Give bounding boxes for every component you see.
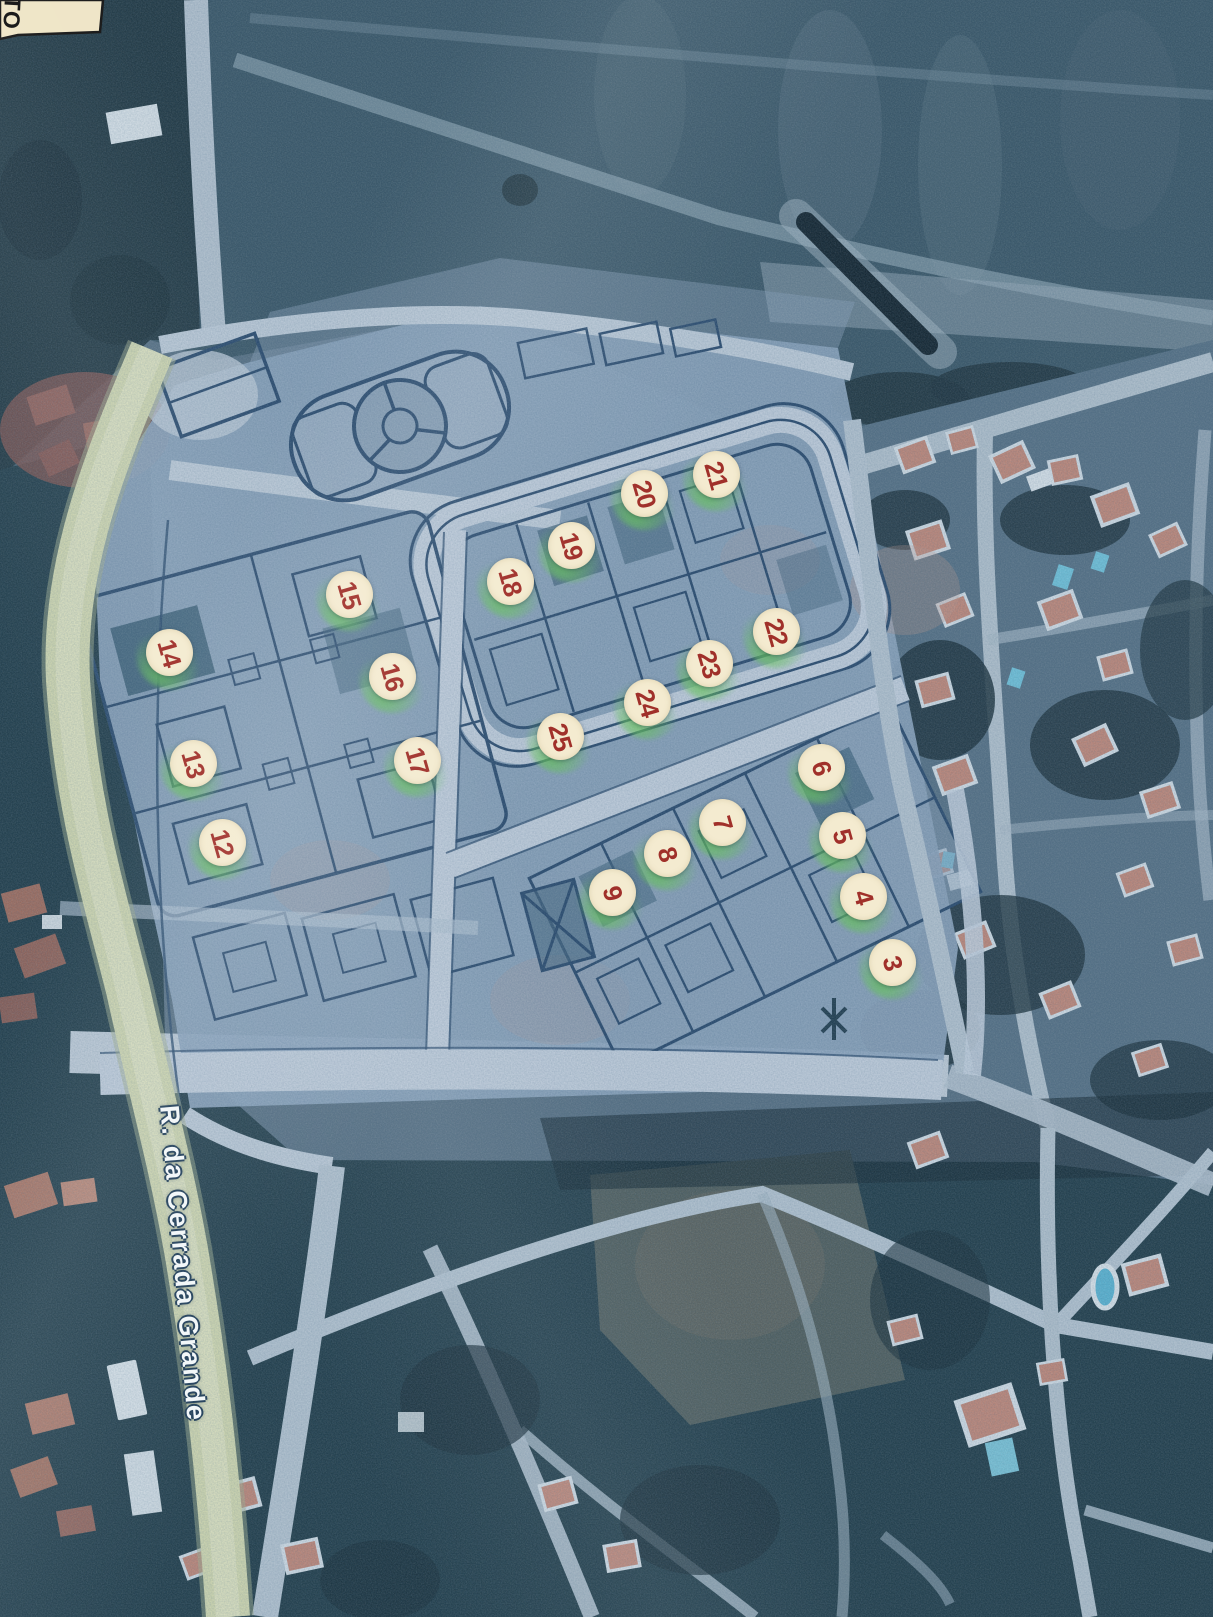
lot-marker-number: 6 — [807, 757, 836, 777]
lot-marker-number: 21 — [700, 458, 732, 491]
corner-label: TO — [0, 0, 26, 30]
lot-marker-16: 16 — [369, 653, 416, 700]
lot-marker-number: 12 — [206, 826, 238, 859]
lot-marker-number: 19 — [555, 529, 587, 562]
markers-layer: 34567891213141516171819202122232425 — [0, 0, 1213, 1617]
lot-marker-number: 14 — [153, 636, 185, 669]
lot-marker-12: 12 — [199, 819, 246, 866]
lot-marker-number: 17 — [401, 744, 433, 777]
lot-marker-3: 3 — [869, 939, 916, 986]
lot-marker-15: 15 — [326, 571, 373, 618]
lot-marker-number: 23 — [693, 647, 725, 680]
lot-marker-number: 16 — [376, 660, 408, 693]
lot-marker-4: 4 — [840, 873, 887, 920]
lot-marker-25: 25 — [537, 713, 584, 760]
lot-marker-19: 19 — [548, 522, 595, 569]
lot-marker-number: 7 — [708, 812, 737, 832]
lot-marker-24: 24 — [624, 679, 671, 726]
lot-marker-number: 3 — [878, 952, 907, 972]
lot-marker-number: 9 — [598, 882, 627, 902]
lot-marker-number: 25 — [544, 720, 576, 753]
lot-marker-5: 5 — [819, 812, 866, 859]
lot-marker-9: 9 — [589, 869, 636, 916]
lot-marker-number: 4 — [849, 886, 878, 906]
lot-marker-7: 7 — [699, 799, 746, 846]
lot-marker-8: 8 — [644, 830, 691, 877]
page-corner-overlay: TO — [0, 0, 110, 46]
lot-marker-22: 22 — [753, 608, 800, 655]
lot-marker-number: 18 — [494, 565, 526, 598]
lot-marker-number: 24 — [631, 686, 663, 719]
lot-marker-number: 8 — [653, 843, 682, 863]
lot-marker-number: 13 — [177, 747, 209, 780]
lot-marker-13: 13 — [170, 740, 217, 787]
lot-marker-6: 6 — [798, 744, 845, 791]
aerial-lot-map: 34567891213141516171819202122232425 R. d… — [0, 0, 1213, 1617]
lot-marker-number: 22 — [760, 615, 792, 648]
lot-marker-18: 18 — [487, 558, 534, 605]
lot-marker-21: 21 — [693, 451, 740, 498]
lot-marker-number: 15 — [333, 578, 365, 611]
lot-marker-17: 17 — [394, 737, 441, 784]
lot-marker-number: 20 — [628, 477, 660, 510]
lot-marker-14: 14 — [146, 629, 193, 676]
lot-marker-20: 20 — [621, 470, 668, 517]
lot-marker-23: 23 — [686, 640, 733, 687]
lot-marker-number: 5 — [828, 825, 857, 845]
